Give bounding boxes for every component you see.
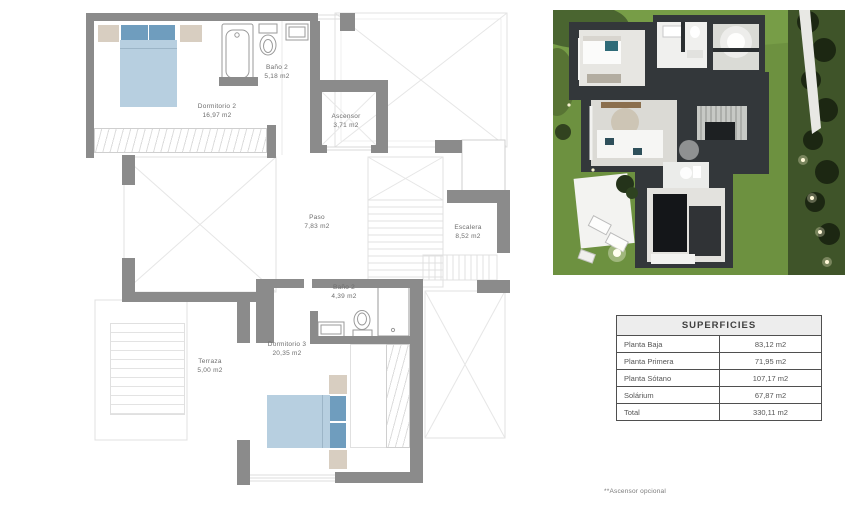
- row-value: 67,87 m2: [720, 387, 822, 404]
- page: Dormitorio 216,97 m2 Baño 25,18 m2 Ascen…: [0, 0, 850, 530]
- closet-dormitorio3: [350, 344, 387, 448]
- bed-pillow: [149, 25, 175, 40]
- footnote-ascensor-opcional: **Ascensor opcional: [604, 488, 666, 495]
- row-label: Solárium: [617, 387, 720, 404]
- wall-segment: [310, 80, 388, 92]
- wall-segment: [447, 190, 510, 203]
- table-superficies: SUPERFICIES Planta Baja 83,12 m2 Planta …: [616, 315, 822, 421]
- table-row: Planta Primera 71,95 m2: [617, 353, 822, 370]
- label-ascensor: Ascensor3,71 m2: [316, 113, 376, 130]
- table-row: Solárium 67,87 m2: [617, 387, 822, 404]
- floor-plan: Dormitorio 216,97 m2 Baño 25,18 m2 Ascen…: [0, 0, 545, 530]
- wall-segment: [410, 279, 423, 483]
- row-value: 107,17 m2: [720, 370, 822, 387]
- row-label: Planta Baja: [617, 336, 720, 353]
- bed-pillow: [121, 25, 148, 40]
- wall-segment: [237, 300, 250, 343]
- label-escalera: Escalera8,52 m2: [438, 224, 498, 241]
- wall-segment: [274, 279, 304, 288]
- nightstand: [329, 450, 347, 469]
- bed-pillow: [330, 396, 346, 421]
- wall-segment: [122, 292, 256, 302]
- wall-segment: [86, 13, 94, 158]
- row-label: Planta Primera: [617, 353, 720, 370]
- nightstand: [180, 25, 202, 42]
- wall-segment: [435, 140, 462, 153]
- wall-segment: [256, 279, 274, 343]
- table-row: Planta Baja 83,12 m2: [617, 336, 822, 353]
- wall-segment: [237, 440, 250, 485]
- wall-segment: [371, 145, 388, 153]
- wall-segment: [376, 92, 388, 145]
- label-bano-2-superior: Baño 25,18 m2: [247, 64, 307, 81]
- wall-segment: [497, 203, 510, 253]
- bed-pillow: [330, 423, 346, 448]
- row-value: 330,11 m2: [720, 404, 822, 421]
- label-bano-2-inferior: Baño 24,39 m2: [314, 284, 374, 301]
- wall-segment: [122, 258, 135, 292]
- table-title: SUPERFICIES: [617, 316, 822, 336]
- nightstand: [329, 375, 347, 394]
- wall-segment: [310, 145, 327, 153]
- wall-segment: [86, 13, 318, 21]
- label-dormitorio-2: Dormitorio 216,97 m2: [177, 103, 257, 120]
- label-terraza: Terraza5,00 m2: [180, 358, 240, 375]
- render-3d-aerial-view: [553, 10, 845, 275]
- row-value: 71,95 m2: [720, 353, 822, 370]
- wall-segment: [335, 472, 423, 483]
- row-value: 83,12 m2: [720, 336, 822, 353]
- bed-fold-line: [120, 48, 177, 49]
- bed-dormitorio2: [120, 40, 177, 107]
- row-label: Planta Sótano: [617, 370, 720, 387]
- render-3d-image: [553, 10, 845, 275]
- label-paso: Paso7,83 m2: [287, 214, 347, 231]
- wall-segment: [477, 280, 510, 293]
- bed-dormitorio3: [267, 395, 330, 448]
- wall-segment: [267, 125, 276, 158]
- wardrobe-dormitorio2: [94, 128, 267, 153]
- wardrobe-dormitorio3: [386, 344, 410, 448]
- wall-segment: [340, 13, 355, 31]
- table-row: Planta Sótano 107,17 m2: [617, 370, 822, 387]
- terraza-slats: [110, 323, 185, 415]
- nightstand: [98, 25, 119, 42]
- label-dormitorio-3: Dormitorio 320,35 m2: [247, 341, 327, 358]
- wall-segment: [122, 155, 135, 185]
- row-label: Total: [617, 404, 720, 421]
- table-row: Total 330,11 m2: [617, 404, 822, 421]
- bed-fold-line: [322, 395, 323, 448]
